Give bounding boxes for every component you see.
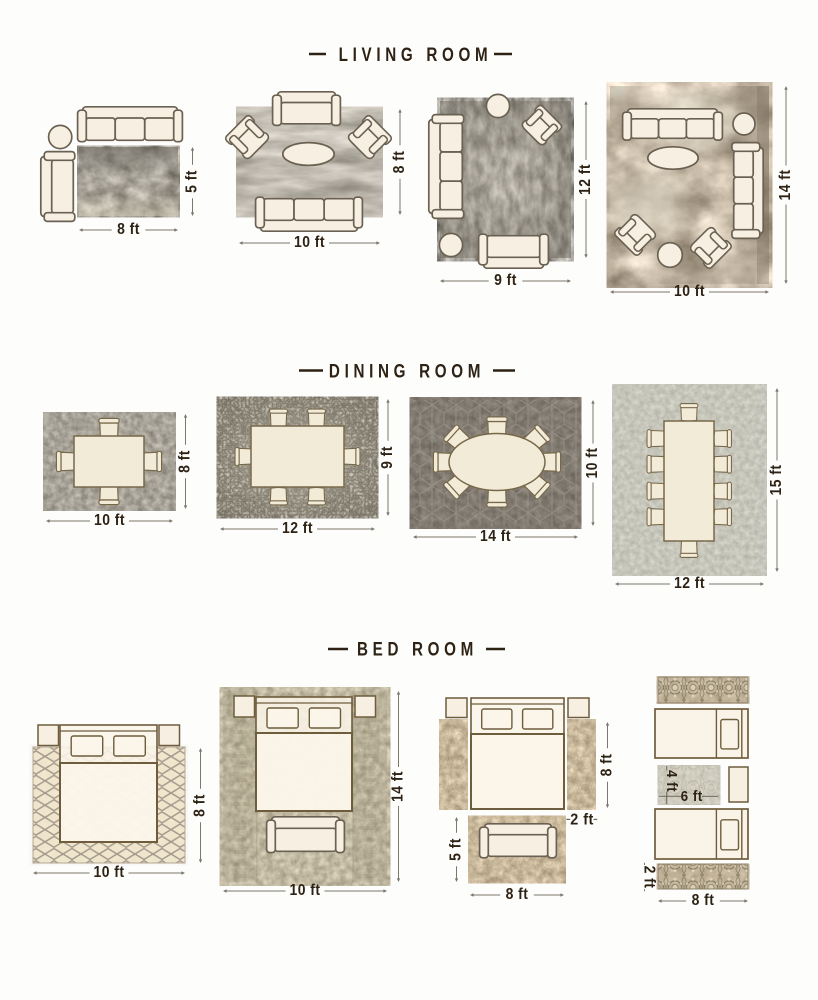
svg-text:6 ft: 6 ft [681, 788, 703, 805]
svg-text:8 ft: 8 ft [692, 893, 715, 910]
svg-text:8 ft: 8 ft [506, 887, 529, 904]
svg-text:8 ft: 8 ft [177, 450, 194, 473]
svg-text:10 ft: 10 ft [94, 513, 125, 530]
svg-text:8 ft: 8 ft [192, 794, 209, 817]
svg-text:5 ft: 5 ft [448, 838, 465, 861]
svg-text:8 ft: 8 ft [117, 222, 140, 239]
svg-text:8 ft: 8 ft [599, 754, 616, 777]
svg-text:2 ft: 2 ft [640, 866, 657, 889]
svg-text:14 ft: 14 ft [480, 529, 511, 546]
svg-text:9 ft: 9 ft [494, 273, 517, 290]
svg-text:15 ft: 15 ft [769, 465, 786, 496]
svg-text:DINING ROOM: DINING ROOM [329, 360, 485, 382]
svg-text:4 ft: 4 ft [663, 770, 680, 792]
svg-text:10 ft: 10 ft [290, 883, 321, 900]
svg-text:10 ft: 10 ft [674, 284, 705, 301]
svg-text:8 ft: 8 ft [392, 151, 409, 174]
svg-text:LIVING ROOM: LIVING ROOM [339, 43, 493, 65]
svg-text:12 ft: 12 ft [282, 521, 313, 538]
svg-text:10 ft: 10 ft [294, 235, 325, 252]
svg-text:14 ft: 14 ft [778, 170, 795, 201]
svg-text:9 ft: 9 ft [380, 446, 397, 469]
svg-text:14 ft: 14 ft [390, 771, 407, 802]
svg-text:12 ft: 12 ft [674, 576, 705, 593]
svg-text:10 ft: 10 ft [94, 865, 125, 882]
svg-text:12 ft: 12 ft [578, 164, 595, 195]
svg-text:2 ft: 2 ft [570, 811, 593, 829]
svg-text:BED ROOM: BED ROOM [357, 638, 478, 660]
svg-text:5 ft: 5 ft [184, 170, 201, 193]
svg-text:10 ft: 10 ft [585, 448, 602, 479]
